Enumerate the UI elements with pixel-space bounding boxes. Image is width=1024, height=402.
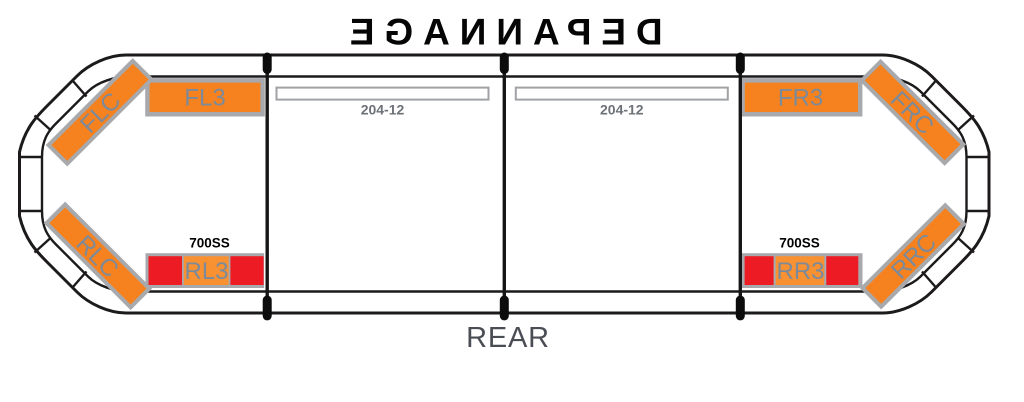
svg-text:204-12: 204-12 xyxy=(361,102,405,118)
svg-text:RR3: RR3 xyxy=(776,258,824,285)
svg-text:700SS: 700SS xyxy=(189,236,230,251)
svg-text:FL3: FL3 xyxy=(184,85,225,112)
svg-text:DEPANNAGE: DEPANNAGE xyxy=(340,12,663,53)
svg-text:FR3: FR3 xyxy=(778,85,823,112)
svg-text:204-12: 204-12 xyxy=(600,102,644,118)
svg-text:RL3: RL3 xyxy=(184,258,228,285)
svg-text:700SS: 700SS xyxy=(779,236,820,251)
svg-text:REAR: REAR xyxy=(466,322,550,354)
